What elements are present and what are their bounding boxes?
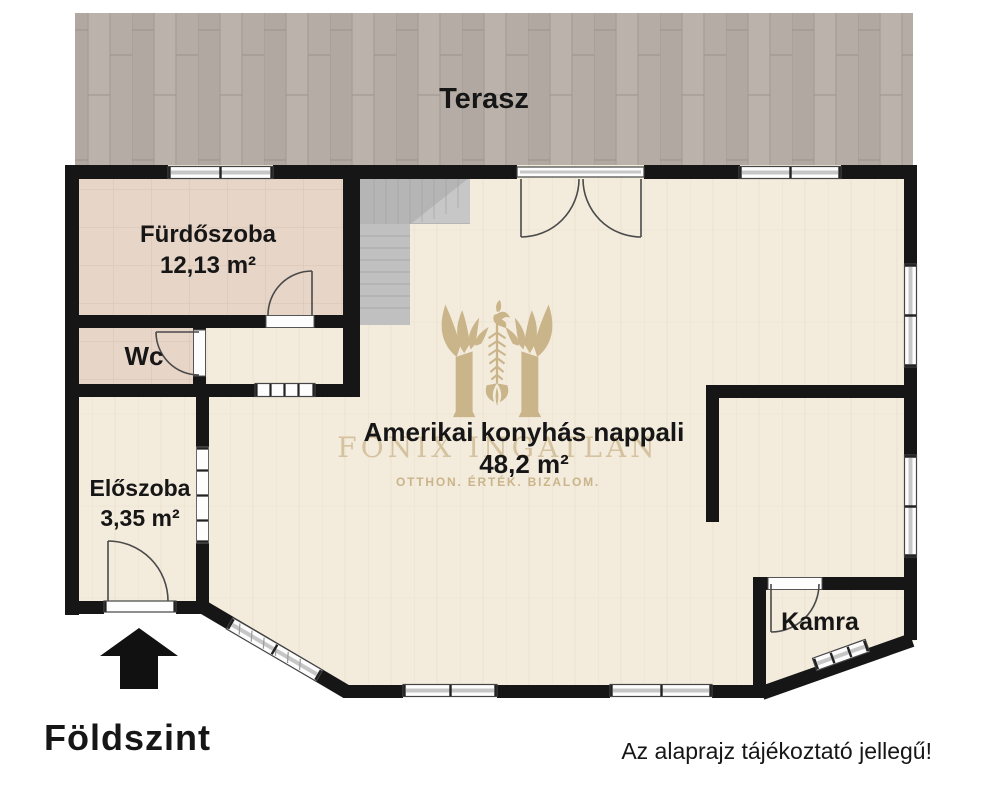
room-label-kamra: Kamra <box>769 608 871 637</box>
window-bathroom-top <box>168 167 273 179</box>
room-label-nappali: Amerikai konyhás nappali 48,2 m² <box>328 416 720 480</box>
floorplan-image: FŐNIX INGATLAN OTTHON. ÉRTÉK. BIZALOM. T… <box>0 0 1000 787</box>
opening-hall-living <box>255 384 315 397</box>
floor-title: Földszint <box>44 717 264 759</box>
room-label-wc: Wc <box>104 341 184 372</box>
room-label-eloszoba: Előszoba 3,35 m² <box>50 473 230 533</box>
phoenix-m-logo-icon <box>424 297 570 419</box>
room-area: 48,2 m² <box>328 448 720 480</box>
room-name: Előszoba <box>90 475 191 501</box>
disclaimer-text: Az alaprajz tájékoztató jellegű! <box>560 738 932 765</box>
room-name: Amerikai konyhás nappali <box>364 417 685 447</box>
window-right-lower <box>905 455 917 557</box>
window-bottom-left <box>403 685 497 697</box>
room-area: 12,13 m² <box>88 250 328 281</box>
window-bottom-right <box>610 685 712 697</box>
room-label-furdoszoba: Fürdőszoba 12,13 m² <box>88 219 328 281</box>
room-area: 3,35 m² <box>50 503 230 533</box>
room-name: Fürdőszoba <box>140 221 276 248</box>
room-label-terasz: Terasz <box>414 83 554 116</box>
entrance-arrow-icon <box>100 628 178 689</box>
window-right-upper <box>905 264 917 367</box>
window-living-top <box>739 167 841 179</box>
